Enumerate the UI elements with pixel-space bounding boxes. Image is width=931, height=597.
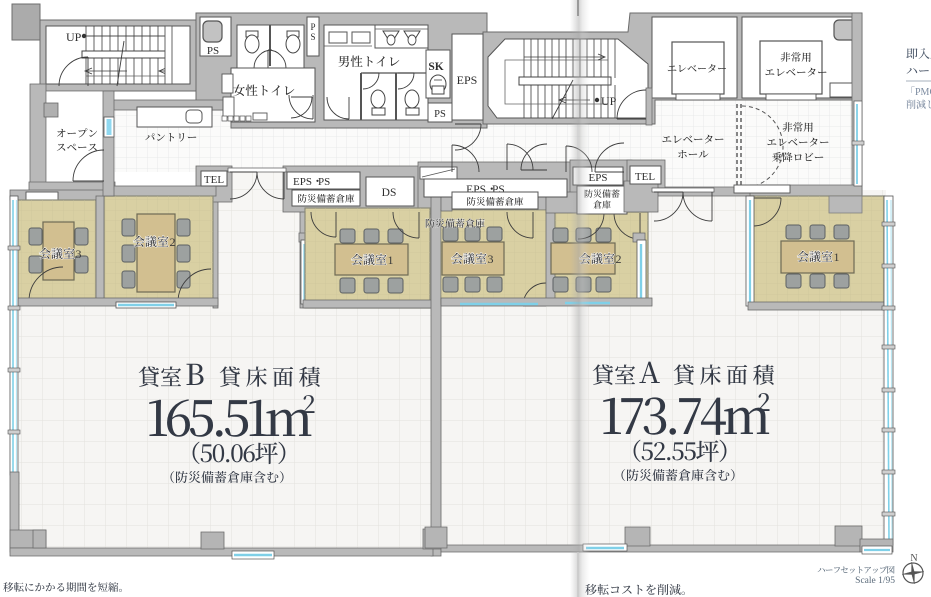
svg-text:PS: PS bbox=[318, 176, 330, 188]
svg-text:P: P bbox=[310, 22, 315, 32]
svg-text:TEL: TEL bbox=[204, 174, 224, 186]
svg-text:1: 1 bbox=[834, 250, 840, 264]
svg-text:1: 1 bbox=[388, 253, 394, 267]
svg-text:UP: UP bbox=[66, 30, 82, 44]
svg-text:3: 3 bbox=[76, 247, 82, 261]
svg-text:S: S bbox=[310, 32, 315, 42]
svg-text:3: 3 bbox=[488, 252, 494, 266]
svg-text:2: 2 bbox=[616, 252, 622, 266]
svg-text:Scale 1/95: Scale 1/95 bbox=[855, 576, 895, 586]
svg-text:SK: SK bbox=[428, 61, 443, 73]
svg-text:2: 2 bbox=[170, 235, 176, 249]
svg-text:PMG: PMG bbox=[915, 87, 931, 98]
svg-text:PS: PS bbox=[434, 109, 446, 120]
svg-text:EPS: EPS bbox=[589, 172, 608, 184]
svg-text:UP: UP bbox=[601, 94, 617, 108]
svg-text:PS: PS bbox=[207, 45, 219, 57]
svg-text:EPS: EPS bbox=[293, 176, 312, 188]
svg-text:DS: DS bbox=[382, 187, 397, 199]
svg-text:EPS: EPS bbox=[457, 73, 478, 87]
svg-text:TEL: TEL bbox=[635, 171, 655, 183]
